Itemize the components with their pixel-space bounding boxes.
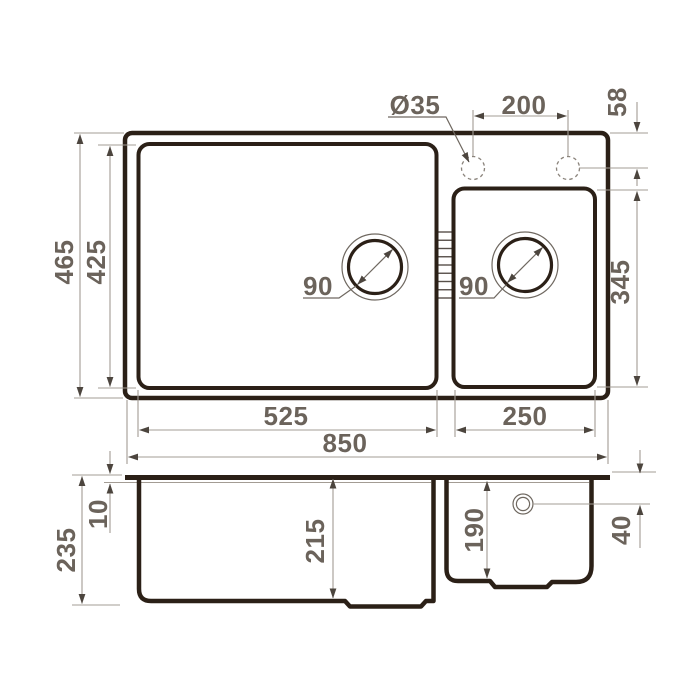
dim-overall-depth-label: 465 [49, 240, 79, 285]
main-bowl-outline [139, 144, 437, 388]
dim-main-bowl-width-label: 525 [264, 401, 309, 431]
dim-bowl-depth-label: 425 [81, 240, 111, 285]
dim-second-bowl-width-label: 250 [503, 401, 548, 431]
section-view: 235 10 215 190 40 [51, 450, 656, 607]
sink-outer-rim-outline [125, 133, 608, 398]
dim-main-drain-diameter-label: 90 [303, 271, 333, 301]
dim-rim-thickness-label: 10 [83, 499, 113, 529]
bowl-divider-hatch [439, 232, 452, 298]
dim-faucet-hole-spacing-label: 200 [502, 90, 547, 120]
section-extension-lines [72, 472, 656, 605]
overflow-hole-inner-circle [516, 497, 529, 510]
faucet-diameter-leader [388, 117, 469, 162]
main-bowl-section-profile [139, 479, 434, 607]
dim-faucet-hole-diameter-label: Ø35 [390, 90, 441, 120]
dim-second-bowl-inner-depth-label: 190 [459, 508, 489, 553]
top-view: Ø35 200 58 465 425 90 90 345 525 250 850 [49, 87, 648, 464]
top-view-dimension-lines [80, 102, 637, 457]
sink-dimension-drawing: Ø35 200 58 465 425 90 90 345 525 250 850 [0, 0, 700, 700]
drawing-canvas: Ø35 200 58 465 425 90 90 345 525 250 850 [0, 0, 700, 700]
dim-overflow-offset-label: 40 [606, 515, 636, 545]
dim-main-bowl-inner-depth-label: 215 [300, 519, 330, 564]
faucet-hole-right-dashed-circle [557, 157, 580, 180]
dim-second-bowl-depth-label: 345 [605, 260, 635, 305]
dim-overall-height-label: 235 [51, 528, 81, 573]
dim-faucet-hole-offset-label: 58 [602, 87, 632, 117]
dim-overall-width-label: 850 [323, 428, 368, 458]
top-view-extension-lines [74, 110, 648, 464]
faucet-hole-left-dashed-circle [462, 157, 485, 180]
dim-second-drain-diameter-label: 90 [459, 271, 489, 301]
